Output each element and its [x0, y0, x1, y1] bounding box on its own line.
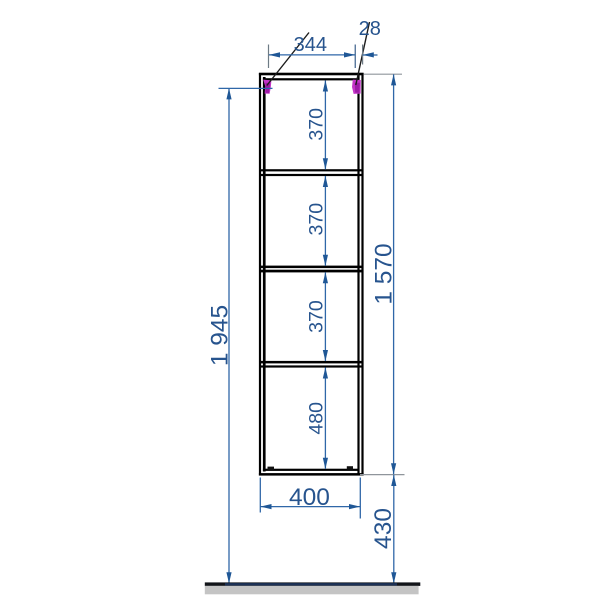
svg-text:480: 480: [306, 402, 328, 435]
svg-text:400: 400: [289, 484, 330, 511]
svg-text:370: 370: [306, 203, 328, 236]
svg-text:28: 28: [359, 18, 381, 40]
svg-text:1 945: 1 945: [206, 305, 233, 366]
svg-text:430: 430: [370, 508, 397, 549]
svg-text:344: 344: [294, 34, 327, 56]
svg-text:370: 370: [306, 108, 328, 141]
svg-text:1 570: 1 570: [370, 243, 397, 304]
svg-text:370: 370: [306, 300, 328, 333]
